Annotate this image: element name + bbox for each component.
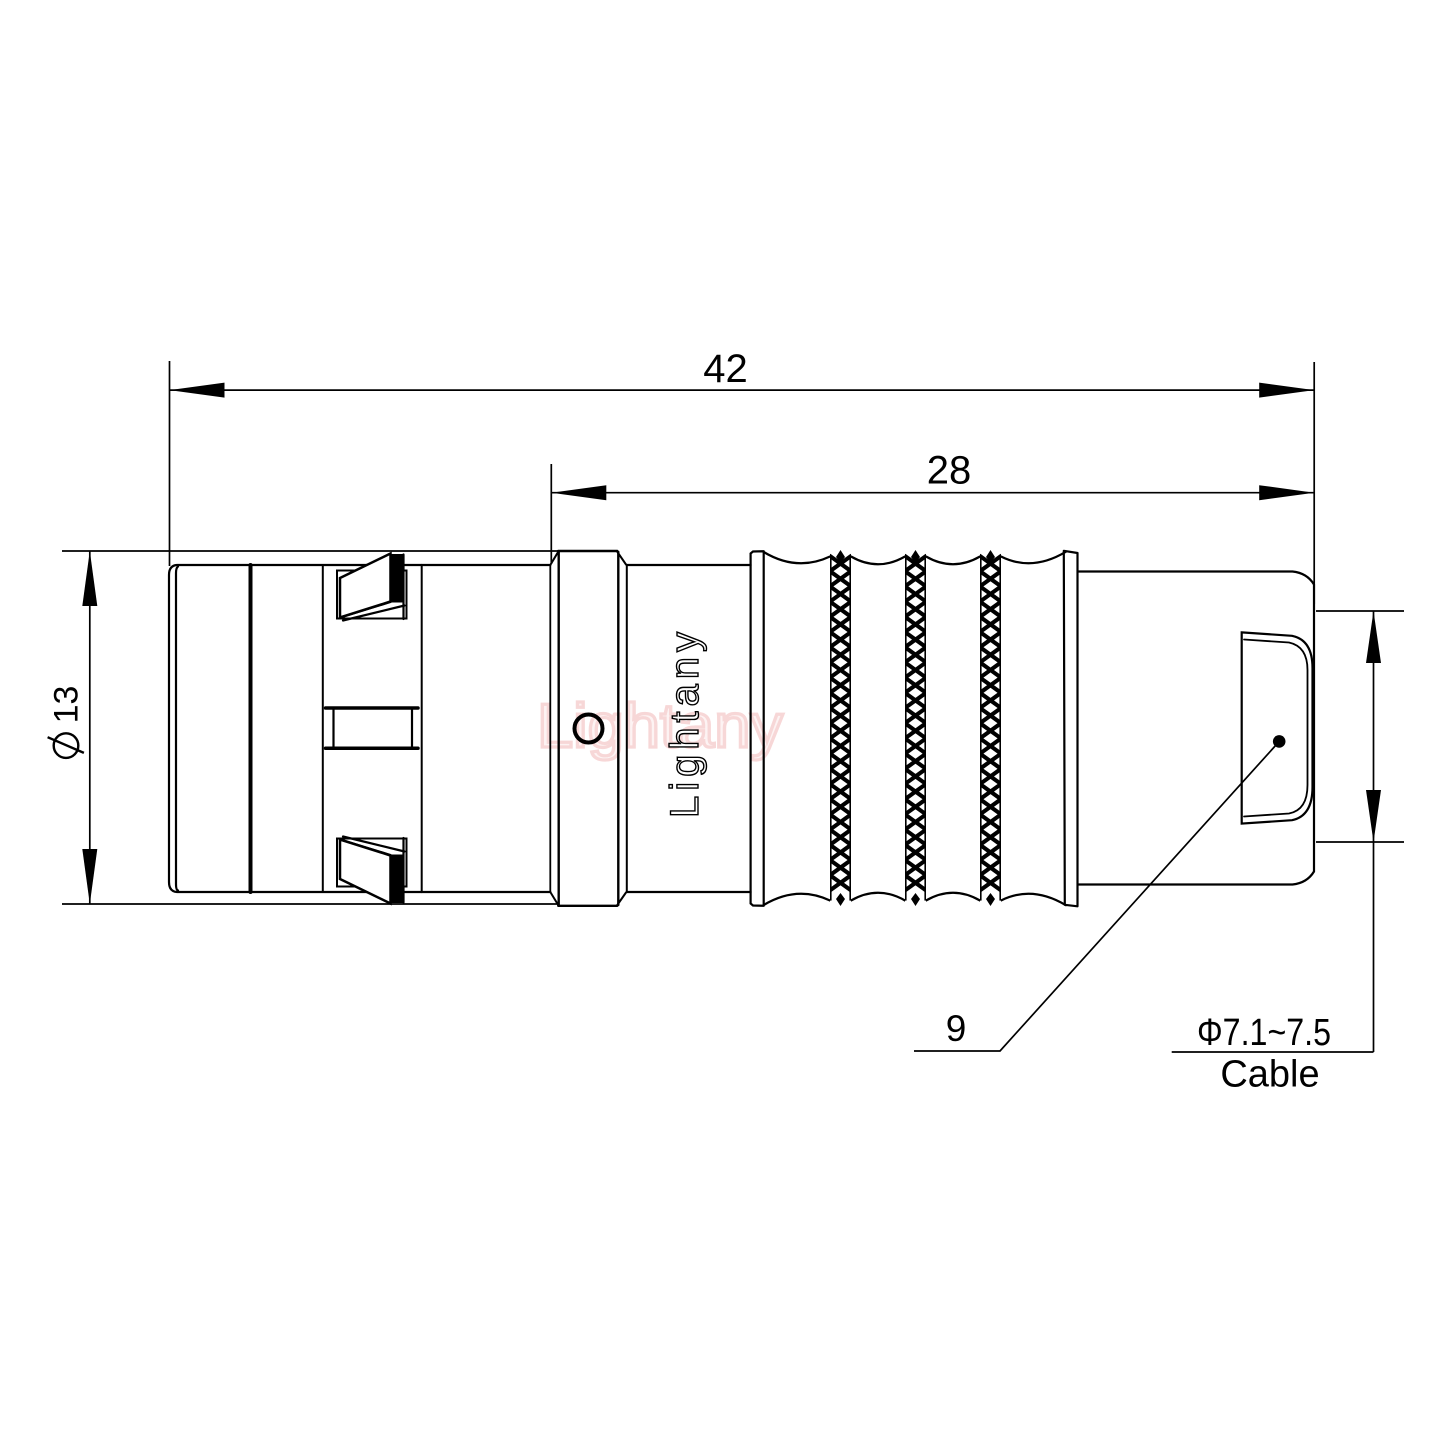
svg-text:Cable: Cable [1220,1054,1319,1096]
svg-text:42: 42 [703,347,748,391]
svg-text:Φ7.1~7.5: Φ7.1~7.5 [1197,1012,1331,1054]
svg-text:9: 9 [946,1008,967,1049]
svg-text:13: 13 [48,686,86,724]
svg-text:28: 28 [927,449,972,493]
